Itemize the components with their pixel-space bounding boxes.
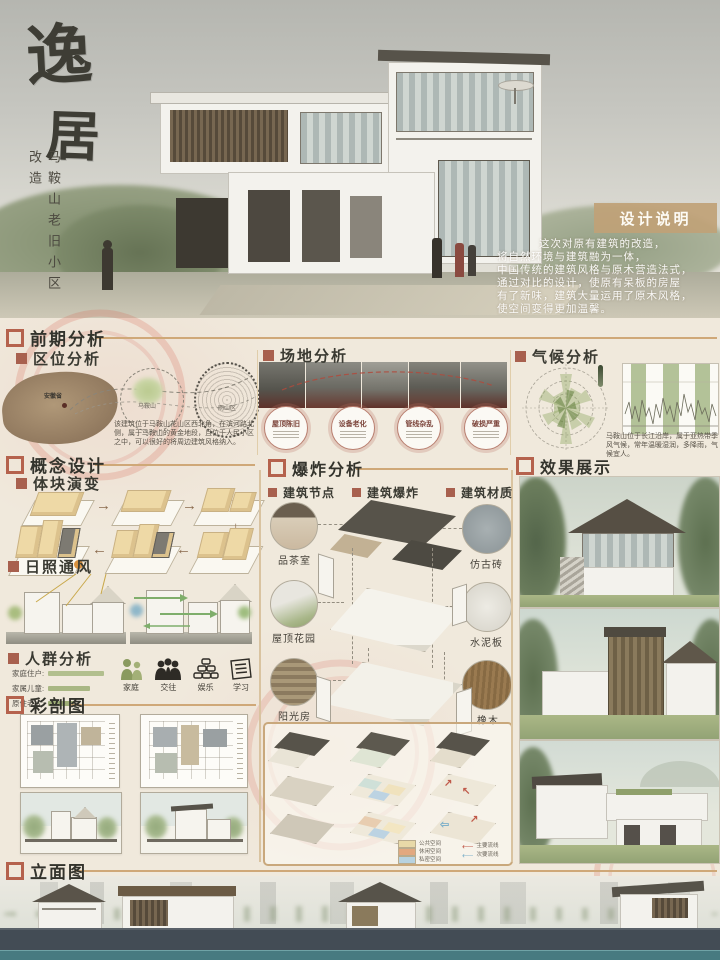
divider: [511, 470, 513, 862]
design-note-line: 使空间变得更加温馨。: [497, 303, 717, 316]
climate-line: [623, 364, 718, 434]
person-silhouette-1: [432, 238, 442, 278]
site-issue: 设备老化: [331, 406, 375, 450]
person-head-left: [103, 240, 112, 249]
flow-arrow-red: ↗: [444, 778, 452, 789]
legend-label: 主要流线: [476, 843, 498, 850]
section-header-elevation: 立面图: [6, 858, 87, 883]
legend-label: 公共空间: [419, 841, 441, 848]
material-swatch-cement: [462, 582, 512, 632]
sun-rays: [6, 572, 126, 632]
wind-rose-marker: [598, 365, 603, 387]
render-wood-tower: [608, 635, 664, 717]
axon-legend-swatches: 公共空间 休闲空间 私密空间: [398, 840, 441, 864]
crowd-icons-row: 家庭 交往 娱乐: [118, 658, 254, 693]
site-issue-detail-lines: [273, 431, 299, 438]
crowd-bar: [48, 686, 90, 691]
ventilation-diagram: [130, 576, 252, 644]
explode-wall-panel: [318, 553, 334, 598]
crowd-icon-label: 学习: [233, 682, 249, 693]
node-connector: [318, 524, 348, 525]
window-dark-1: [248, 190, 290, 262]
section-tree: [145, 815, 167, 839]
section-header-explosion: 爆炸分析: [268, 456, 364, 480]
node-label: 屋顶花园: [272, 630, 316, 645]
section-title: 立面图: [30, 858, 87, 883]
section-building: [71, 817, 97, 841]
elev-slat-panel: [130, 900, 168, 926]
ground-band: [0, 928, 720, 950]
section-header-render: 效果展示: [516, 454, 612, 478]
balcony-rail: [396, 138, 532, 140]
render-roof: [568, 499, 686, 533]
blocks-pyramid-icon: [193, 658, 219, 680]
render-body: [582, 567, 674, 597]
header-rule: [95, 464, 255, 466]
site-annotation-arc: [262, 360, 506, 408]
section-roof: [73, 807, 97, 819]
roof-umbrella-canopy: [498, 80, 534, 91]
sub-title: 体块演变: [33, 473, 101, 494]
massing-arrow: →: [182, 498, 197, 513]
air-node-icon: [130, 604, 143, 617]
climate-chart: [622, 363, 719, 435]
plan-titleblock: [237, 723, 243, 779]
material-swatch-brick: [462, 504, 512, 554]
crowd-bar-label: 家庭住户:: [12, 668, 44, 679]
render-gable-body: [666, 663, 716, 717]
water-band: [0, 950, 720, 960]
sub-bullet-icon: [515, 351, 526, 362]
map-green-zone: [133, 378, 163, 404]
plan-room: [33, 751, 53, 773]
sunlight-diagram: [6, 576, 126, 644]
legend-label: 次要流线: [476, 852, 498, 859]
site-issue-detail-lines: [340, 431, 366, 438]
col-header-materials: 建筑材质: [446, 484, 513, 501]
section-bullet-icon: [268, 459, 286, 477]
tree-icon: [238, 606, 251, 619]
location-desc: 该建筑位于马鞍山花山区西北角，在滨河路北侧，属于马鞍山的黄金地段，且位于人民小区…: [114, 420, 256, 447]
node-photo-tearoom: [270, 502, 318, 550]
sub-bullet-icon: [263, 350, 274, 361]
plan-room: [181, 725, 199, 765]
wind-arrows: [130, 584, 252, 634]
floor-plan-2: [140, 714, 248, 788]
site-issue-label: 破损严重: [472, 419, 500, 429]
legend-label: 休闲空间: [419, 849, 441, 856]
design-note-line: 中国传统的建筑风格与原木营造法式，: [497, 264, 717, 277]
render-stair: [560, 557, 584, 595]
design-note-line: 有了新味，建筑大量运用了原木风格，: [497, 290, 717, 303]
col-title: 建筑节点: [283, 484, 335, 501]
elev-slat-panel: [652, 898, 688, 918]
divider: [259, 470, 261, 862]
person-silhouette-left: [102, 248, 113, 290]
header-rule: [70, 704, 256, 706]
window-dark-2: [302, 190, 340, 262]
plan-titleblock: [109, 723, 115, 779]
section-title: 爆炸分析: [292, 456, 364, 480]
design-note-text: 这次对原有建筑的改造， 将自然环境与建筑融为一体， 中国传统的建筑风格与原木营造…: [497, 238, 717, 316]
explode-wall-panel: [452, 584, 467, 627]
section-groundline: [147, 839, 243, 842]
roof-umbrella-pole: [514, 88, 516, 104]
col-header-nodes: 建筑节点: [268, 484, 335, 501]
design-note-line: 这次对原有建筑的改造，: [539, 238, 717, 251]
elev-wood-band: [118, 886, 236, 896]
poster-title-char-1: 逸: [24, 0, 95, 99]
node-photo-sunroom: [270, 658, 318, 706]
render-tower-cap: [604, 627, 666, 637]
axon-legend-arrows: ⟵主要流线 ⟵次要流线: [462, 842, 498, 860]
map-label-district: 雨山区: [218, 406, 236, 413]
design-note-title: 设计说明: [594, 203, 717, 233]
sub-title: 气候分析: [532, 346, 600, 367]
newspaper-icon: [228, 658, 254, 680]
divider: [510, 350, 511, 455]
massing-arrow: ←: [92, 542, 107, 557]
section-title: 效果展示: [540, 454, 612, 478]
render-body: [536, 785, 608, 839]
render-window: [624, 825, 640, 847]
col-title: 建筑材质: [461, 484, 513, 501]
poster-board: 逸 居 马鞍山老旧小区改造 设计说明 这次对原有建筑的改造， 将自然环境与建筑融…: [0, 0, 720, 960]
elev-rail: [42, 908, 96, 910]
section-groundline: [25, 839, 117, 842]
section-bullet-icon: [6, 696, 24, 714]
section-tree: [97, 817, 117, 839]
sub-title: 人群分析: [25, 648, 93, 669]
render-tree: [519, 477, 566, 607]
floor-plan-1: [20, 714, 120, 788]
section-building: [175, 809, 207, 841]
sub-header-sunwind: 日照通风: [8, 556, 93, 577]
col-title: 建筑爆炸: [367, 484, 419, 501]
plan-room: [81, 727, 101, 745]
plan-room: [153, 727, 177, 747]
poster-subtitle: 马鞍山老旧小区改造: [24, 150, 62, 300]
sub-title: 场地分析: [280, 345, 348, 366]
sub-bullet-icon: [8, 653, 19, 664]
sub-header-site: 场地分析: [263, 345, 348, 366]
window-gray-3: [350, 196, 382, 258]
sub-bullet-icon: [16, 353, 27, 364]
section-title: 彩剖图: [30, 692, 87, 717]
header-rule: [356, 468, 508, 470]
render-tree: [678, 477, 720, 607]
family-icon: [118, 658, 144, 680]
node-label: 品茶室: [278, 552, 311, 567]
massing-arrow: →: [96, 498, 111, 513]
site-issue: 管线杂乱: [397, 406, 441, 450]
node-label: 阳光房: [278, 708, 311, 723]
sub-header-location: 区位分析: [16, 348, 101, 369]
node-photo-roofgarden: [270, 580, 318, 628]
sub-bullet-icon: [8, 561, 19, 572]
section-bullet-icon: [516, 457, 534, 475]
crowd-icon-label: 娱乐: [198, 682, 214, 693]
person-silhouette-3: [468, 245, 476, 276]
site-issue: 屋顶陈旧: [264, 406, 308, 450]
render-green-roof: [616, 789, 672, 795]
render-glass-level: [582, 533, 674, 569]
social-crowd-icon: [153, 658, 183, 680]
section-header-preliminary: 前期分析: [6, 325, 106, 350]
sub-header-massing: 体块演变: [16, 473, 101, 494]
site-issue-label: 设备老化: [339, 419, 367, 429]
header-rule: [74, 870, 717, 872]
site-issue-label: 管线杂乱: [405, 419, 433, 429]
section-bullet-icon: [6, 329, 24, 347]
node-connector: [318, 602, 344, 603]
site-issue-detail-lines: [473, 431, 499, 438]
hero-rendering: 逸 居 马鞍山老旧小区改造 设计说明 这次对原有建筑的改造， 将自然环境与建筑融…: [0, 0, 720, 318]
flow-arrow-red: ↗: [470, 814, 478, 825]
house-left-roof-slab: [150, 92, 402, 104]
elev-wood-panel: [352, 906, 378, 926]
site-issue-label: 屋顶陈旧: [272, 419, 300, 429]
sub-bullet-icon: [446, 488, 455, 497]
plan-room: [31, 725, 53, 745]
explode-wall-panel: [316, 676, 331, 723]
legend-swatch: [398, 848, 416, 856]
col-header-explode: 建筑爆炸: [352, 484, 419, 501]
legend-swatch: [398, 856, 416, 864]
site-issue: 破损严重: [464, 406, 508, 450]
plan-room: [57, 723, 77, 767]
design-note-line: 通过对比的设计，使原有呆板的房屋: [497, 277, 717, 290]
sub-title: 区位分析: [33, 348, 101, 369]
explode-roof-tan: [330, 534, 382, 558]
sub-header-climate: 气候分析: [515, 346, 600, 367]
crowd-icon-label: 交往: [160, 682, 176, 693]
plan-room: [155, 753, 177, 773]
render-lawn: [520, 715, 719, 739]
section-title: 前期分析: [30, 325, 106, 350]
site-issue-detail-lines: [406, 431, 432, 438]
render-image-1: [519, 476, 720, 608]
sub-bullet-icon: [268, 488, 277, 497]
flow-arrow-blue: ⇦: [440, 818, 449, 831]
pilotis-shadow: [176, 198, 228, 268]
sub-bullet-icon: [16, 478, 27, 489]
flow-arrow-red: ↖: [462, 786, 470, 797]
sub-bullet-icon: [352, 488, 361, 497]
section-building: [51, 811, 71, 841]
render-image-2: [519, 608, 720, 740]
explode-roof-dark-2: [392, 540, 462, 570]
section-drawing-2: [140, 792, 248, 854]
massing-block: [120, 490, 171, 512]
map-label-city: 马鞍山: [138, 404, 156, 411]
material-label: 仿古砖: [470, 556, 503, 571]
person-silhouette-2: [455, 243, 464, 277]
house-wood-slat-band: [170, 110, 288, 162]
section-bullet-icon: [6, 862, 24, 880]
material-label: 水泥板: [470, 634, 503, 649]
section-building: [207, 819, 231, 841]
section-header-colorsection: 彩剖图: [6, 692, 87, 717]
crowd-icon-label: 家庭: [123, 682, 139, 693]
elevation-strip: [0, 876, 720, 960]
render-wing-left: [542, 671, 610, 717]
legend-swatch: [398, 840, 416, 848]
legend-arrow-blue: ⟵: [462, 851, 473, 860]
render-lawn: [520, 595, 719, 607]
climate-desc: 马鞍山位于长江沿岸，属于亚热带季风气候，常年温暖湿润，多降雨，气候宜人。: [606, 432, 718, 459]
massing-block: [30, 492, 85, 516]
render-window: [660, 825, 676, 847]
header-rule: [95, 337, 717, 339]
render-lawn: [520, 845, 719, 863]
design-note-line: 将自然环境与建筑融为一体，: [497, 251, 717, 264]
legend-arrow-red: ⟵: [462, 842, 473, 851]
divider: [257, 350, 258, 455]
sub-header-crowd: 人群分析: [8, 648, 93, 669]
render-upper-box: [606, 793, 708, 821]
tree-icon: [8, 606, 22, 620]
section-tree: [23, 815, 45, 839]
section-bullet-icon: [6, 456, 24, 474]
render-hill: [640, 761, 720, 787]
plan-room: [203, 729, 227, 747]
section-drawing-1: [20, 792, 122, 854]
render-image-3: [519, 740, 720, 864]
crowd-bar: [48, 671, 104, 676]
legend-label: 私密空间: [419, 857, 441, 864]
site-issues-row: 屋顶陈旧 设备老化 管线杂乱 破损严重: [264, 406, 508, 450]
sub-title: 日照通风: [25, 556, 93, 577]
house-left-glass: [300, 112, 382, 164]
